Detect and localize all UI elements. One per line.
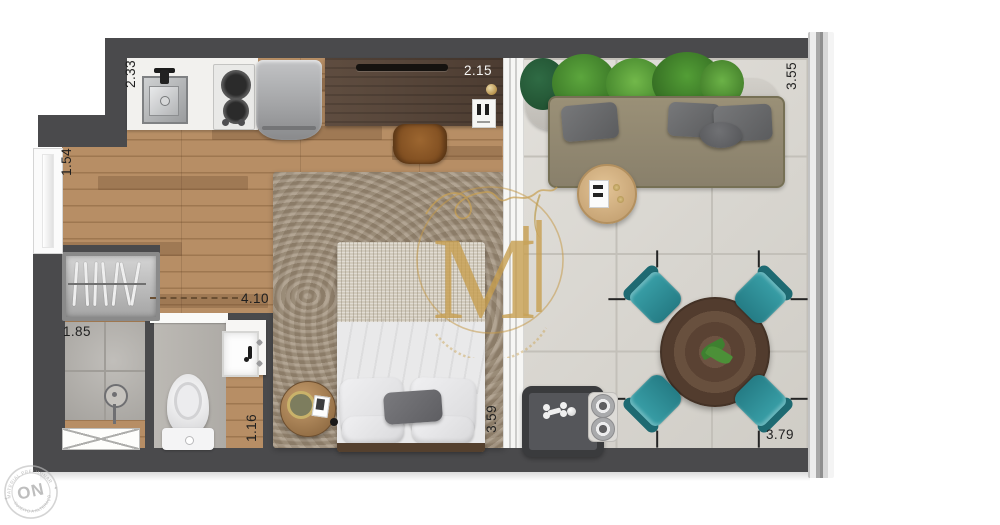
balcony-railing [808, 32, 834, 478]
pet-bowl [591, 394, 615, 418]
table-lamp [330, 418, 338, 426]
bed-headboard [337, 443, 485, 452]
dim-balcony-bottom: 3.79 [766, 428, 794, 442]
shower-pipe [113, 404, 116, 424]
intercom-panel [472, 99, 496, 128]
monogram-m-icon: M [432, 213, 537, 344]
cooktop-knob [222, 119, 229, 126]
coffee-table [577, 164, 637, 224]
tray-item [593, 185, 603, 189]
pet-bowl-stand [588, 392, 618, 442]
bone-icon [560, 410, 567, 417]
shower-drain-dot [112, 392, 117, 397]
toilet [167, 374, 209, 434]
shaft-box [62, 428, 140, 450]
plan-drop-shadow [40, 472, 810, 481]
sofa-pouf [700, 122, 742, 148]
dim-kitchen: 2.33 [124, 60, 138, 88]
chair-leg [758, 431, 760, 448]
chair-leg [608, 298, 625, 300]
dim-desk-wall: 2.15 [464, 64, 492, 78]
wall-bathroom-left [33, 315, 65, 448]
panel-switch [477, 104, 481, 115]
door-knob-icon [486, 84, 497, 95]
door-leaf [42, 154, 54, 248]
tray-item [593, 193, 603, 197]
cup [613, 184, 620, 191]
chair-leg [758, 250, 760, 267]
on-stamp-watermark: MATERIAL PRELIMINAR SUJEITO A ALTERAÇÕES… [0, 458, 65, 525]
chair-leg [791, 298, 808, 300]
desk-monitor-slot [356, 64, 448, 71]
pet-bowl [591, 417, 615, 441]
brand-watermark: M [398, 168, 582, 358]
cooktop-knob [238, 119, 245, 126]
faucet-stem [160, 70, 169, 84]
panel-switch [485, 104, 489, 115]
tap-icon [248, 346, 252, 359]
flush-button [185, 436, 194, 445]
cup [617, 196, 624, 203]
cooktop [213, 64, 255, 130]
sofa-cushion [561, 102, 620, 143]
chair-leg [656, 250, 658, 267]
bone-icon [560, 402, 567, 409]
floor-plan: 2.33 1.54 2.15 3.55 4.10 1.85 1.16 3.59 … [0, 0, 1000, 525]
pet-ball [567, 407, 576, 416]
dim-vanity: 1.16 [245, 414, 259, 442]
photo-frame [312, 395, 331, 418]
coffee-table-tray [589, 180, 609, 208]
refrigerator-handle [262, 126, 316, 130]
burner-icon [221, 70, 251, 100]
dim-entry: 1.54 [60, 148, 74, 176]
wardrobe-rod [68, 283, 146, 285]
floor-plank-shade [98, 176, 248, 190]
sink-drain [160, 96, 170, 106]
kitchen-sink [142, 76, 188, 124]
wardrobe [62, 252, 160, 321]
dim-shower: 1.85 [63, 325, 91, 339]
bone-icon [543, 404, 550, 411]
chair-leg [791, 398, 808, 400]
wall-shower-divider [145, 320, 154, 448]
panel-label-line [477, 121, 490, 123]
nightstand [280, 381, 336, 437]
desk-chair [393, 124, 447, 164]
toilet-tank [162, 428, 214, 450]
bathroom-door [150, 313, 228, 323]
chair-leg [656, 431, 658, 448]
tap-dot [244, 357, 249, 362]
dimension-dashed-line [150, 297, 238, 299]
wall-left-step-horizontal [38, 115, 127, 147]
dim-balcony-side: 3.55 [785, 62, 799, 90]
bathroom-sink [222, 331, 259, 377]
bed-accent-pillow [383, 389, 443, 425]
refrigerator [256, 60, 322, 140]
bone-icon [543, 412, 550, 419]
toilet-seat [174, 382, 202, 420]
dim-bedroom-glass: 3.59 [485, 405, 499, 433]
photo [316, 398, 325, 410]
dim-room-width: 4.10 [241, 292, 269, 306]
